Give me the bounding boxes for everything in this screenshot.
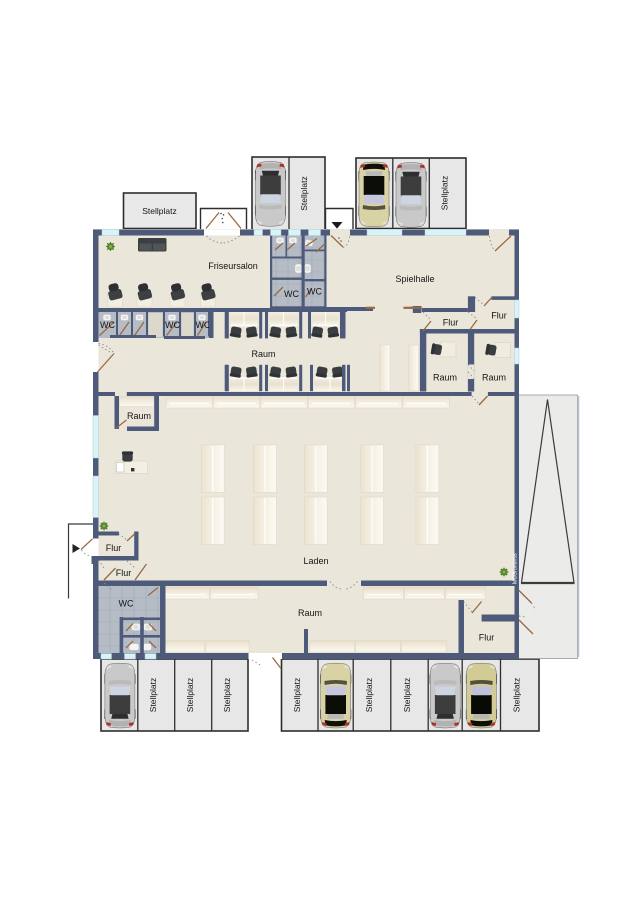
- svg-text:Flur: Flur: [443, 318, 459, 328]
- svg-text:Stellplatz: Stellplatz: [402, 678, 412, 713]
- svg-text:Stellplatz: Stellplatz: [364, 678, 374, 713]
- svg-text:Flur: Flur: [491, 311, 507, 321]
- svg-text:Raum: Raum: [433, 373, 457, 383]
- svg-text:WC: WC: [307, 287, 322, 297]
- svg-text:WC: WC: [100, 320, 115, 330]
- svg-text:MCGrundriss: MCGrundriss: [513, 553, 519, 584]
- svg-text:WC: WC: [165, 320, 180, 330]
- svg-text:Stellplatz: Stellplatz: [440, 176, 450, 211]
- svg-text:Flur: Flur: [106, 543, 122, 553]
- svg-text:Raum: Raum: [482, 373, 506, 383]
- svg-text:Stellplatz: Stellplatz: [222, 678, 232, 713]
- svg-text:Raum: Raum: [127, 411, 151, 421]
- svg-text:Flur: Flur: [116, 568, 132, 578]
- svg-text:Friseursalon: Friseursalon: [208, 261, 258, 271]
- svg-text:Stellplatz: Stellplatz: [148, 678, 158, 713]
- svg-text:Flur: Flur: [479, 633, 495, 643]
- svg-text:Raum: Raum: [298, 608, 322, 618]
- svg-text:WC: WC: [196, 320, 211, 330]
- svg-text:Laden: Laden: [303, 556, 328, 566]
- svg-text:Stellplatz: Stellplatz: [512, 678, 522, 713]
- svg-text:WC: WC: [284, 289, 299, 299]
- svg-text:Stellplatz: Stellplatz: [185, 678, 195, 713]
- svg-text:Stellplatz: Stellplatz: [142, 206, 177, 216]
- svg-text:WC: WC: [119, 599, 134, 609]
- svg-text:Raum: Raum: [251, 349, 275, 359]
- svg-text:Stellplatz: Stellplatz: [299, 176, 309, 211]
- svg-text:Stellplatz: Stellplatz: [292, 678, 302, 713]
- svg-text:Spielhalle: Spielhalle: [395, 274, 434, 284]
